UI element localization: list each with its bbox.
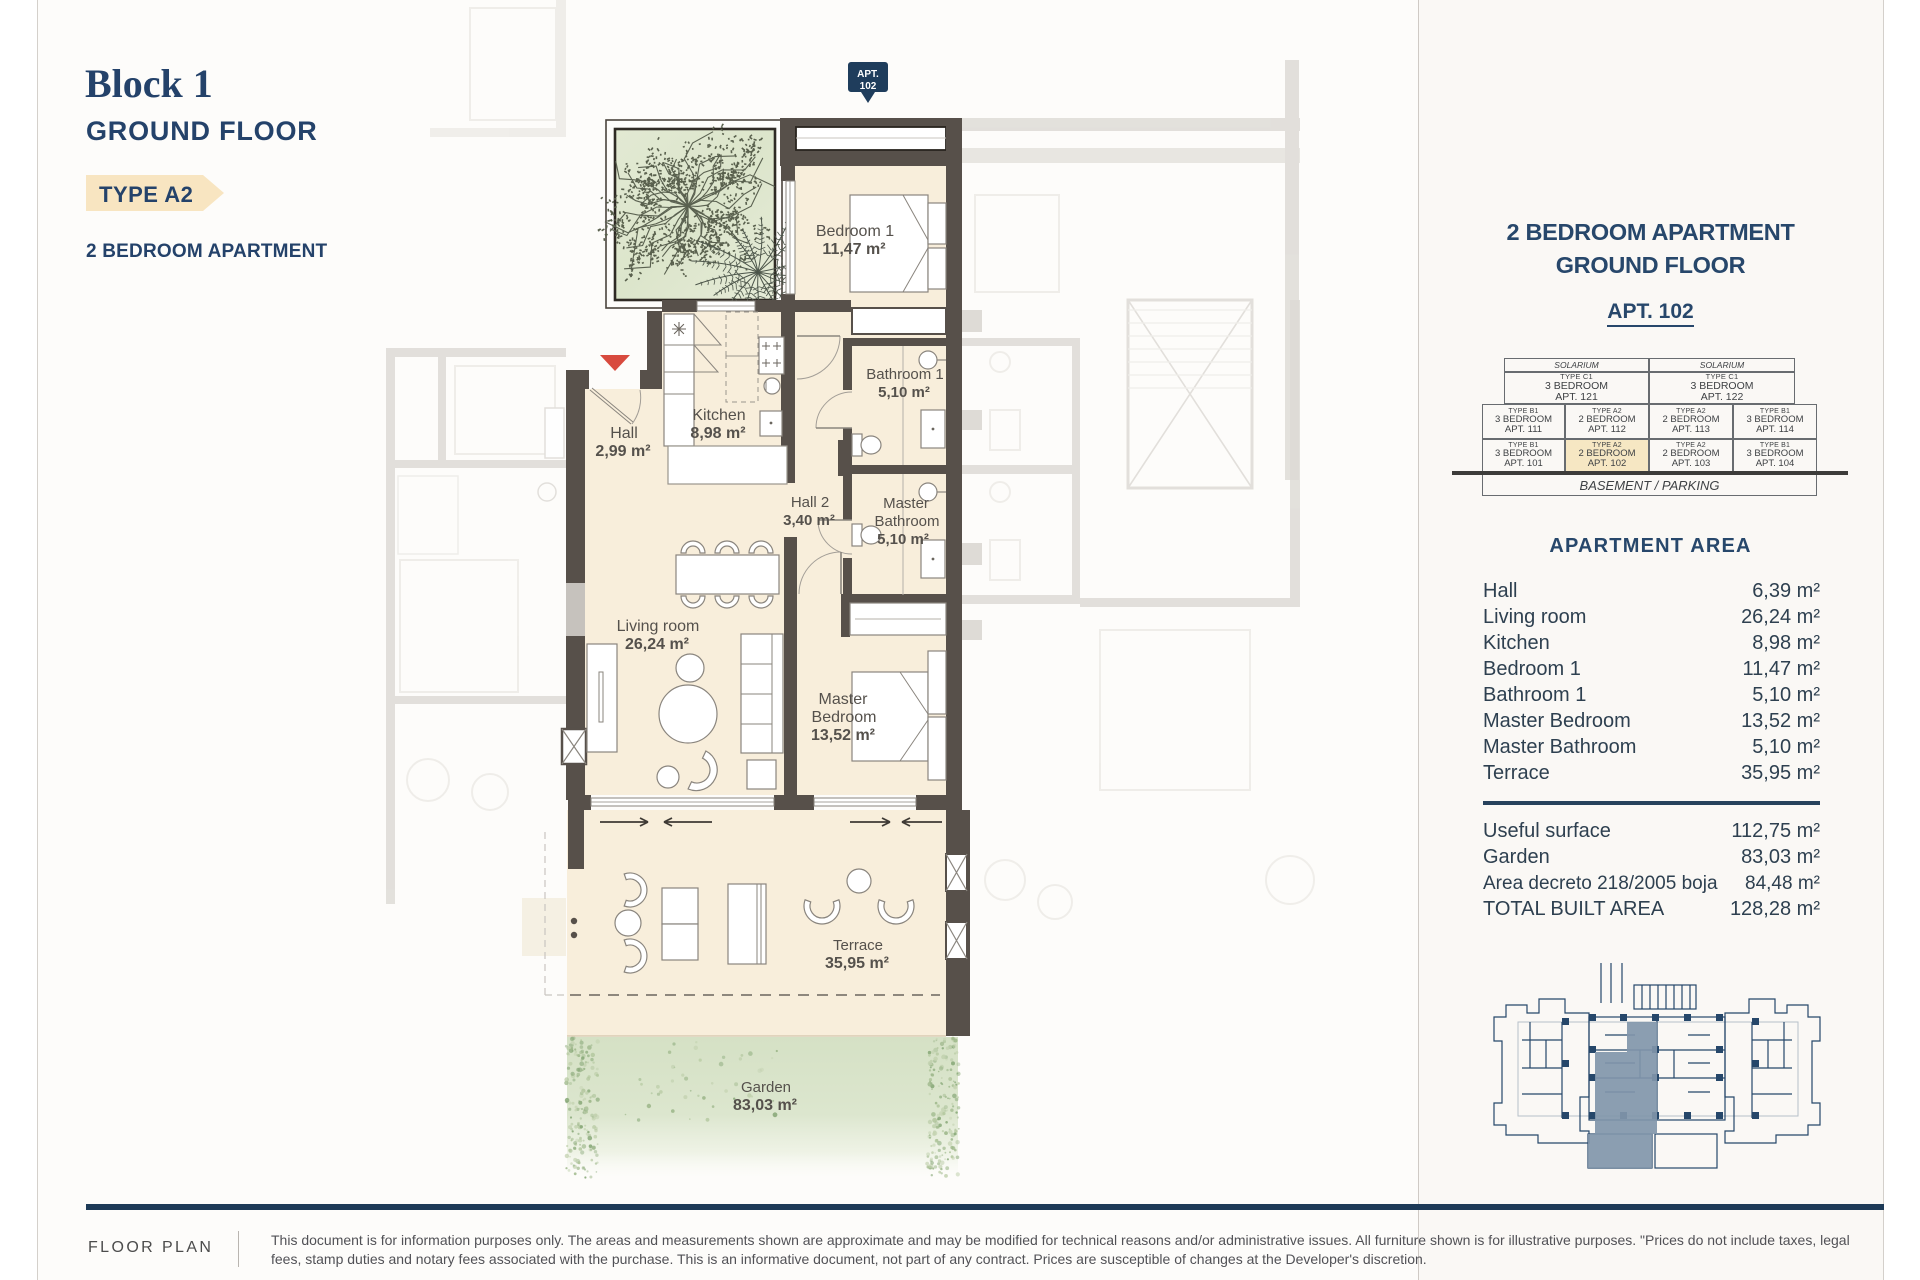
svg-text:APT.: APT. [857,69,879,80]
svg-text:83,03 m²: 83,03 m² [733,1097,797,1114]
svg-text:Bathroom 1: Bathroom 1 [866,366,944,383]
svg-text:5,10 m²: 5,10 m² [877,531,929,548]
svg-text:26,24 m²: 26,24 m² [625,636,689,653]
svg-text:13,52 m²: 13,52 m² [811,727,875,744]
svg-text:Terrace: Terrace [833,937,883,954]
svg-text:Bedroom 1: Bedroom 1 [816,223,894,240]
svg-text:102: 102 [860,81,877,92]
svg-text:11,47 m²: 11,47 m² [822,241,885,258]
svg-text:Living room: Living room [617,618,700,635]
svg-text:5,10 m²: 5,10 m² [878,384,930,401]
svg-text:Hall 2: Hall 2 [791,494,829,511]
svg-text:2,99 m²: 2,99 m² [595,443,650,460]
svg-text:35,95 m²: 35,95 m² [825,955,889,972]
svg-text:Bathroom: Bathroom [874,513,939,530]
svg-text:Master: Master [819,691,869,708]
svg-text:Hall: Hall [610,425,638,442]
svg-text:Bedroom: Bedroom [812,709,877,726]
svg-text:Kitchen: Kitchen [692,407,745,424]
svg-text:3,40 m²: 3,40 m² [783,512,835,529]
svg-text:Master: Master [883,495,929,512]
svg-text:8,98 m²: 8,98 m² [690,425,745,442]
svg-text:Garden: Garden [741,1079,791,1096]
